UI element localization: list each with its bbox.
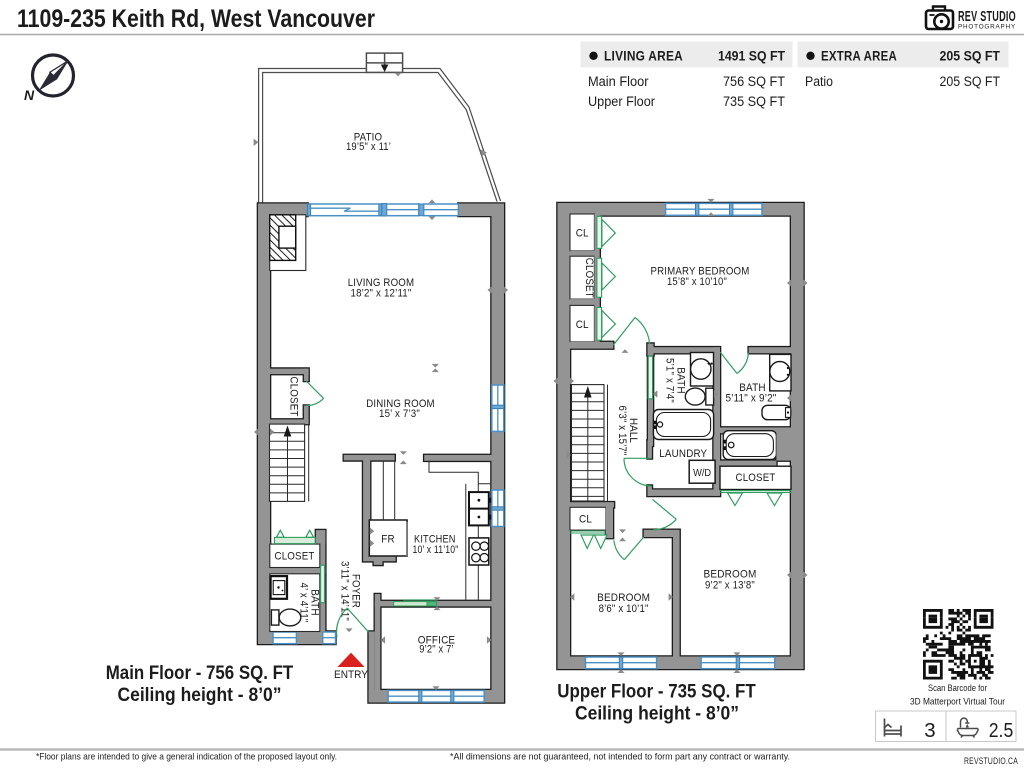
- svg-text:3D Matterport Virtual Tour: 3D Matterport Virtual Tour: [910, 697, 1005, 707]
- svg-text:Patio: Patio: [805, 74, 833, 90]
- svg-text:1109-235 Keith Rd, West Vancou: 1109-235 Keith Rd, West Vancouver: [17, 5, 375, 33]
- svg-text:19’5" x 11’: 19’5" x 11’: [346, 141, 391, 153]
- svg-text:CLOSET: CLOSET: [275, 551, 315, 563]
- svg-text:205 SQ FT: 205 SQ FT: [940, 49, 1001, 64]
- svg-text:5’1" x 7’4": 5’1" x 7’4": [664, 358, 676, 403]
- svg-text:4’ x 4’11": 4’ x 4’11": [298, 583, 310, 623]
- svg-text:Upper Floor: Upper Floor: [588, 94, 655, 110]
- svg-text:*All dimensions are not guaran: *All dimensions are not guaranteed, not …: [450, 752, 790, 762]
- svg-text:Ceiling height - 8’0”: Ceiling height - 8’0”: [118, 684, 282, 706]
- svg-text:756 SQ FT: 756 SQ FT: [723, 74, 785, 90]
- svg-text:FR: FR: [381, 534, 395, 546]
- svg-text:3’11" x 14’11": 3’11" x 14’11": [339, 561, 351, 621]
- svg-text:2.5: 2.5: [989, 719, 1014, 742]
- svg-text:PHOTOGRAPHY: PHOTOGRAPHY: [958, 24, 1016, 31]
- svg-text:Main Floor - 756 SQ. FT: Main Floor - 756 SQ. FT: [106, 662, 294, 684]
- svg-text:ENTRY: ENTRY: [334, 669, 369, 681]
- svg-text:735 SQ FT: 735 SQ FT: [723, 94, 785, 110]
- svg-text:CLOSET: CLOSET: [288, 377, 300, 417]
- svg-text:CL: CL: [579, 514, 592, 526]
- svg-text:CL: CL: [576, 319, 589, 331]
- svg-text:3: 3: [924, 719, 935, 742]
- svg-text:9’2" x 13’8": 9’2" x 13’8": [705, 580, 755, 592]
- svg-text:REV STUDIO: REV STUDIO: [958, 9, 1016, 25]
- svg-text:CLOSET: CLOSET: [583, 258, 595, 298]
- svg-text:Main Floor: Main Floor: [588, 74, 649, 90]
- svg-text:10’ x 11’10": 10’ x 11’10": [413, 544, 459, 556]
- svg-text:CL: CL: [576, 228, 589, 240]
- svg-text:15’8" x 10’10": 15’8" x 10’10": [667, 276, 727, 288]
- svg-text:6’3" x 15’7": 6’3" x 15’7": [616, 406, 628, 456]
- svg-text:5’11" x 9’2": 5’11" x 9’2": [726, 393, 777, 405]
- svg-text:Upper Floor - 735 SQ. FT: Upper Floor - 735 SQ. FT: [557, 681, 755, 703]
- svg-text:REVSTUDIO.CA: REVSTUDIO.CA: [964, 756, 1018, 766]
- svg-text:Scan Barcode for: Scan Barcode for: [928, 683, 987, 693]
- svg-text:18’2" x 12’11": 18’2" x 12’11": [351, 288, 412, 300]
- svg-text:8’6" x 10’1": 8’6" x 10’1": [599, 603, 649, 615]
- svg-text:9’2" x 7’: 9’2" x 7’: [419, 644, 454, 656]
- svg-text:1491 SQ FT: 1491 SQ FT: [718, 49, 786, 64]
- svg-text:LIVING AREA: LIVING AREA: [604, 49, 683, 64]
- svg-text:Ceiling height - 8’0”: Ceiling height - 8’0”: [575, 703, 739, 725]
- svg-text:EXTRA AREA: EXTRA AREA: [821, 49, 897, 64]
- svg-text:LAUNDRY: LAUNDRY: [659, 448, 707, 460]
- svg-text:205 SQ FT: 205 SQ FT: [940, 74, 1001, 90]
- svg-text:N: N: [24, 87, 35, 103]
- svg-text:CLOSET: CLOSET: [736, 472, 776, 484]
- svg-text:W/D: W/D: [693, 468, 711, 479]
- svg-text:15’ x 7’3": 15’ x 7’3": [379, 408, 420, 420]
- svg-text:*Floor plans are intended to g: *Floor plans are intended to give a gene…: [36, 752, 337, 762]
